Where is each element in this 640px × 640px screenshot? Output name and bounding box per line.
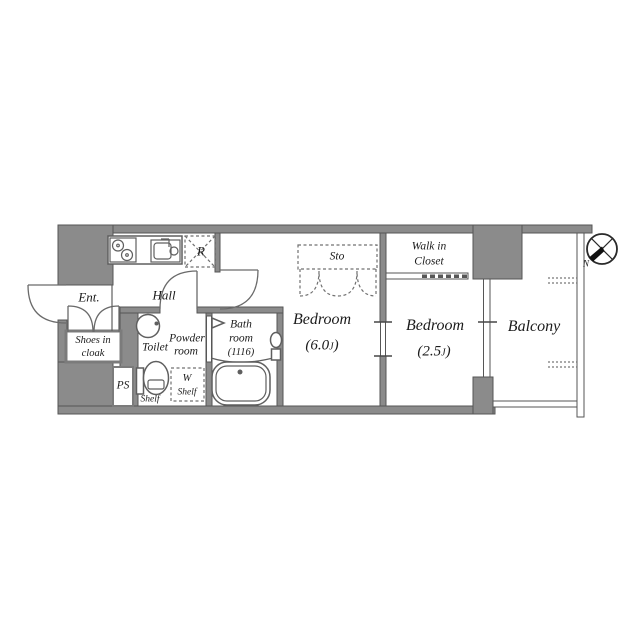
wall-bedroom-divider-upper (380, 233, 386, 322)
room-label-balcony: Balcony (508, 319, 560, 335)
washbasin-icon (137, 315, 160, 338)
wall-powder-top-left (120, 307, 160, 313)
room-label-bedroom1: Bedroom (293, 312, 351, 328)
bedroom1-door-arc-icon (220, 270, 258, 309)
shoe-cabinet-doors-icon (68, 306, 119, 332)
bathroom-door-panel (207, 316, 212, 362)
balcony-railing-bottom (493, 401, 577, 407)
room-label-entrance: Ent. (78, 291, 99, 304)
room-label-powder-2: room (174, 346, 198, 358)
room-label-shoes-cloak-2: cloak (82, 349, 105, 360)
room-label-toilet: Toilet (142, 342, 168, 354)
bedroom1-size-close: ) (334, 338, 339, 354)
bedroom-divider-sliding-door (381, 322, 386, 356)
label-compass-north: N (583, 260, 589, 269)
room-label-bathroom-1: Bath (230, 319, 252, 331)
wall-bedroom-divider-lower (380, 356, 386, 406)
balcony-window (484, 279, 491, 377)
room-label-pipe-space: PS (117, 380, 130, 392)
label-storage: Sto (330, 251, 345, 263)
room-label-powder-1: Powder (169, 333, 205, 345)
bifold-door-arc (338, 271, 376, 296)
room-label-closet-1: Walk in (412, 241, 446, 253)
wall-bottom (58, 406, 495, 414)
wall-block-top-left (58, 225, 113, 285)
room-label-bedroom2-size: (2.5J) (417, 345, 450, 360)
bifold-door-arc (300, 271, 338, 296)
room-label-bedroom2: Bedroom (406, 318, 464, 334)
floor-plan: Ent. Hall Shoes in cloak PS Toilet Powde… (0, 0, 640, 640)
bathroom-door-marker-icon (212, 318, 224, 328)
room-label-bedroom1-size: (6.0J) (305, 339, 338, 354)
label-shelf: Shelf (141, 395, 160, 405)
wall-block-bottom-right (473, 377, 493, 414)
label-washer-shelf-1: W (183, 374, 192, 385)
bathtub-icon (211, 357, 277, 405)
compass-needle (589, 247, 605, 262)
compass-rose-icon (587, 234, 617, 264)
label-washer-shelf-2: Shelf (178, 388, 197, 398)
room-label-shoes-cloak-1: Shoes in (75, 336, 110, 347)
room-label-bathroom-3: (1116) (228, 348, 254, 359)
room-label-bathroom-2: room (229, 333, 253, 345)
wall-block-closet-balcony (473, 225, 522, 279)
bedroom2-size-close: ) (446, 344, 451, 360)
room-label-closet-2: Closet (414, 256, 443, 268)
bedroom2-size-open: (2.5 (417, 344, 441, 360)
room-label-hall: Hall (152, 289, 175, 302)
bedroom1-size-open: (6.0 (305, 338, 329, 354)
entrance-door-arc-icon (28, 285, 66, 323)
bath-faucet-icon (271, 333, 282, 361)
label-refrigerator: R (197, 245, 205, 258)
wall-powder-bath-top (197, 307, 283, 313)
toilet-icon (137, 362, 169, 395)
wall-hall-bedroom1 (215, 233, 220, 272)
